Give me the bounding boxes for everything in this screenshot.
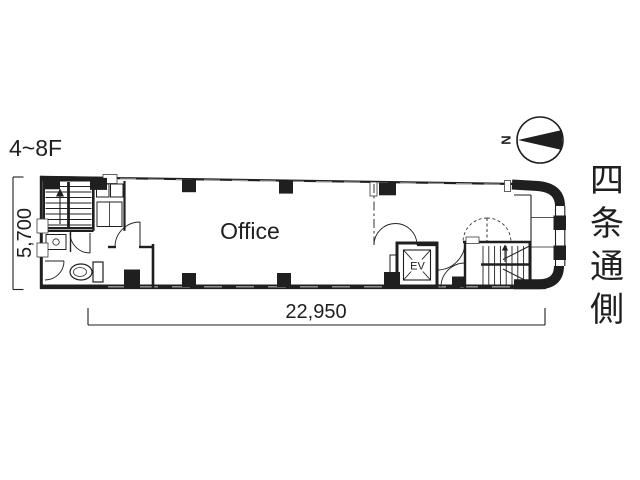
street-side-label: 四 条 通 側 (590, 162, 624, 329)
north-arrow-needle-icon (518, 130, 562, 150)
wall-duct-box (37, 219, 48, 233)
north-label: N (498, 135, 513, 144)
street-side-char: 側 (590, 291, 624, 329)
wall-duct-box (37, 243, 48, 257)
door-arc (70, 233, 90, 253)
sink-icon (46, 235, 66, 250)
dimension-width: 22,950 (88, 301, 545, 325)
door-arc (115, 222, 140, 247)
stair-arrowhead (56, 189, 64, 197)
street-side-char: 通 (590, 248, 624, 286)
street-side-char: 四 (590, 162, 624, 200)
door-arc-dashed (487, 218, 511, 242)
column (182, 179, 196, 192)
column (182, 273, 196, 287)
column (277, 273, 291, 287)
floor-range-label: 4~8F (9, 135, 62, 161)
column (43, 177, 60, 189)
office-room-label: Office (220, 218, 280, 244)
toilet-tank (93, 262, 103, 282)
toilet-bowl-inner (74, 268, 87, 277)
top-wall-pilaster (370, 182, 377, 196)
north-arrow: N (498, 117, 563, 163)
office-area: Office (220, 218, 280, 244)
right-wall-mullion-block (554, 216, 567, 231)
street-side-end-cap (505, 181, 567, 285)
depth-dimension-value: 5,700 (14, 208, 36, 258)
end-cap-window-slit (505, 181, 511, 192)
door-arc (437, 242, 465, 270)
sink-basin (53, 239, 59, 245)
right-wall-mullion-block (554, 246, 567, 261)
column (379, 182, 396, 195)
column (279, 181, 293, 194)
stair-wall-window (466, 237, 479, 244)
floor-plan-drawing: Office EV (0, 0, 640, 480)
end-cap-bottom-band (514, 266, 559, 284)
elevator-label: EV (410, 261, 425, 273)
door-arc (45, 261, 64, 280)
restroom (45, 231, 103, 282)
dimension-depth: 5,700 (13, 177, 36, 290)
duct-box (111, 184, 124, 197)
street-side-char: 条 (590, 205, 624, 243)
stair-arrowhead (502, 245, 508, 251)
width-dimension-value: 22,950 (285, 301, 346, 323)
floor-plan-page: Office EV (0, 0, 640, 480)
column (124, 270, 140, 288)
